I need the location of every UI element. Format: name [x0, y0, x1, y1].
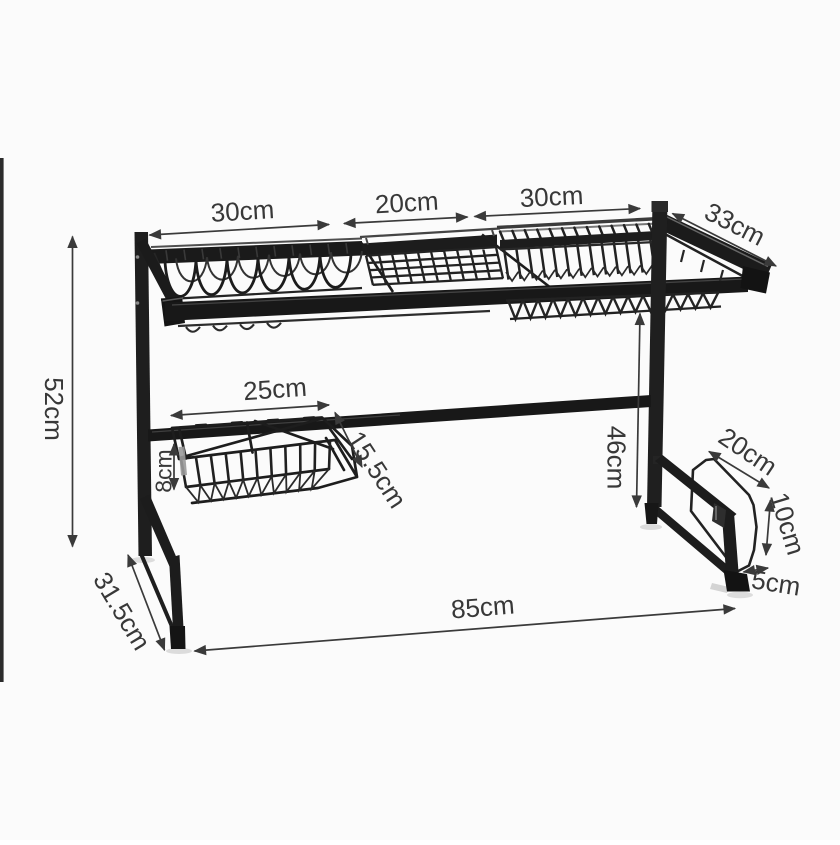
svg-text:30cm: 30cm — [519, 180, 584, 213]
svg-text:8cm: 8cm — [151, 449, 177, 492]
svg-text:25cm: 25cm — [242, 372, 308, 406]
svg-text:85cm: 85cm — [450, 590, 516, 625]
svg-text:20cm: 20cm — [374, 186, 439, 220]
svg-text:30cm: 30cm — [210, 194, 275, 228]
svg-text:46cm: 46cm — [602, 426, 632, 490]
svg-text:52cm: 52cm — [39, 377, 69, 441]
